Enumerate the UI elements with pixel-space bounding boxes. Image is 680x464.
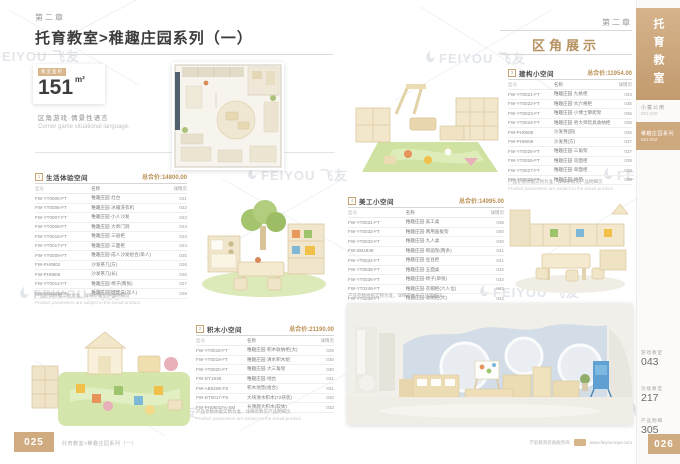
cell-name: 稚趣庄园·九人桌: [406, 238, 478, 244]
table-total: 总合价:14800.00: [142, 172, 187, 181]
cell-name: 稚趣庄园·椅子(两张): [91, 281, 161, 287]
cell-model: FW-YT0012-FT: [35, 281, 91, 286]
table-row: FW-DT0017-FS 大块清水积木(72块装) 032: [196, 394, 334, 404]
table-row: FW-YT0024-FT 稚趣庄园·男大师玩具收纳柜 036: [508, 119, 632, 129]
cell-name: 稚趣庄园·衣帽柜(六人位): [406, 286, 478, 292]
cell-model: FW-DT0017-FS: [196, 395, 247, 400]
footer-website: www.feiyou-toys.com: [590, 440, 632, 445]
table-title: 积木小空间: [207, 324, 242, 334]
product-table-art-space: 4 美工小空间 总合价:14995.00 型号 名称 详情页 FW-YT0031…: [348, 194, 504, 304]
right-page-number: 026: [648, 434, 680, 454]
classroom-photo: [347, 303, 633, 425]
cell-model: FW-YT0035-FT: [348, 267, 406, 272]
total-label: 总合价:: [459, 199, 479, 205]
cell-model: FW-YT0007-FT: [35, 215, 91, 220]
cell-name: 稚趣庄园·大六格柜: [554, 101, 611, 107]
area-number: 151: [38, 76, 73, 99]
intro-text-cn: 区角游戏·情景性语言: [38, 112, 109, 122]
cell-page: 041: [477, 248, 504, 253]
active-series-range: 021-042: [641, 137, 680, 142]
cell-model: FW-PH0808: [35, 272, 91, 277]
cell-model: FW-AB0205-FS: [196, 386, 247, 391]
cell-model: FW-YT0016-FT: [35, 234, 91, 239]
table-header: 1 生活体验空间 总合价:14800.00: [35, 170, 187, 184]
table-row: FW-YT0033-FT 稚趣庄园·九人桌 040: [348, 237, 504, 247]
col-page: 详情页: [611, 82, 632, 88]
table-row: FW-YT0016-FT 稚趣庄园·三层柜 024: [35, 232, 187, 242]
title-underline: [35, 54, 333, 55]
table-row: FW-YT0036-FT 稚趣庄园·椅子(单张) 042: [348, 275, 504, 285]
table-number-badge: 4: [348, 197, 356, 205]
classroom-area-card: 教室面积 151m²: [33, 64, 105, 104]
note-en: Product parameters are subject to the ac…: [508, 185, 632, 192]
col-name: 名称: [247, 338, 310, 344]
page-title: 托育教室>稚趣庄园系列（一）: [35, 27, 253, 48]
cell-name: 稚趣庄园·晾画架(两条): [406, 248, 478, 254]
cell-page: 030: [311, 357, 334, 362]
table-row: FW-YT0006-FT 稚趣庄园·冰箱洗衣机 022: [35, 204, 187, 214]
chapter-label: 第二章: [35, 12, 253, 23]
cell-page: 036: [611, 130, 632, 135]
cell-model: FW-YT0025-FT: [508, 149, 554, 154]
table-header: 4 美工小空间 总合价:14995.00: [348, 194, 504, 208]
total-value: 11954.00: [607, 71, 632, 77]
total-value: 14995.00: [479, 199, 504, 205]
left-page-header: 第二章 托育教室>稚趣庄园系列（一）: [35, 12, 253, 48]
sidebar-link-page: 217: [641, 392, 663, 404]
cell-page: 040: [477, 239, 504, 244]
cell-name: 稚趣庄园·成人沙发组合(单人): [91, 252, 161, 258]
sidebar-link[interactable]: 功能教室 217: [641, 386, 663, 404]
table-title: 美工小空间: [359, 196, 394, 206]
cell-name: 稚趣庄园·积木收纳柜(大): [247, 347, 310, 353]
cell-page: 031: [311, 386, 334, 391]
table-row: FW-YT0034-FT 稚趣庄园·豆豆柜 041: [348, 256, 504, 266]
cell-model: FW-PH0608: [508, 139, 554, 144]
table-row: FW-YT0026-FT 稚趣庄园·双面柜 038: [508, 157, 632, 167]
col-name: 名称: [91, 186, 161, 192]
table-row: FW-PH0508 沙发凳(圆) 036: [508, 128, 632, 138]
construction-space-product-image: [348, 70, 504, 188]
cell-model: FW-YT0020-FT: [196, 367, 247, 372]
cell-model: FW-YT0017-FT: [35, 243, 91, 248]
table-row: FW-YT0032-FT 稚趣庄园·两用画板架 040: [348, 228, 504, 238]
cell-page: 029: [311, 348, 334, 353]
total-label: 总合价:: [142, 175, 162, 181]
cell-page: 026: [161, 272, 187, 277]
table-rows: FW-YT0005-FT 稚趣庄园·灶台 021 FW-YT0006-FT 稚趣…: [35, 194, 187, 299]
footer-logo-icon: [574, 439, 586, 446]
table-row: FW-YT0020-FT 稚趣庄园·大三角架 030: [196, 365, 334, 375]
cell-page: 030: [311, 367, 334, 372]
total-label: 总合价:: [587, 71, 607, 77]
col-page: 详情页: [477, 210, 504, 216]
col-model: 型号: [348, 210, 406, 216]
cell-page: 042: [477, 277, 504, 282]
note-cn: 产品参数依据实物为准，详细参数见产品明细页: [196, 408, 334, 415]
product-table-blocks-space: 2 积木小空间 总合价:21190.00 型号 名称 详情页 FW-YT0018…: [196, 322, 334, 413]
table-total: 总合价:14995.00: [459, 196, 504, 205]
cell-page: 040: [477, 229, 504, 234]
sidebar-tab-nursery-classroom[interactable]: 托育教室: [636, 8, 680, 100]
table-number-badge: 1: [35, 173, 43, 181]
cell-model: FW-YT0019-FT: [196, 357, 247, 362]
cell-page: 038: [611, 158, 632, 163]
feiyou-logo-icon: [424, 50, 436, 65]
table-row: FW-YT0008-FT 稚趣庄园·大师门洞 023: [35, 223, 187, 233]
cell-page: 042: [477, 267, 504, 272]
col-model: 型号: [35, 186, 91, 192]
sidebar-group-common[interactable]: 小童公用 001-020: [641, 104, 665, 116]
table-rows: FW-YT0031-FT 稚趣庄园·美工桌 039 FW-YT0032-FT 稚…: [348, 218, 504, 304]
table-row: FW-YT0005-FT 稚趣庄园·灶台 021: [35, 194, 187, 204]
cell-model: FW-YT0027-FT: [508, 168, 554, 173]
cell-page: 035: [611, 111, 632, 116]
cell-name: 稚趣庄园·三角架: [554, 148, 611, 154]
cell-model: FW-YT0023-FT: [508, 111, 554, 116]
column-headers: 型号 名称 详情页: [196, 336, 334, 346]
right-chapter: 第二章: [500, 12, 632, 30]
cell-page: 026: [161, 262, 187, 267]
floor-plan-image: [172, 62, 284, 170]
cell-model: FW-YT0032-FT: [348, 229, 406, 234]
table-header: 3 建构小空间 总合价:11954.00: [508, 66, 632, 80]
catalog-spread: FEIYOU 飞友 FEIYOU 飞友 FEIYOU 飞友 FEIYOU 飞友 …: [0, 0, 680, 464]
feiyou-logo-icon: [18, 286, 30, 301]
cell-page: 023: [161, 215, 187, 220]
cell-model: FW-DY1838: [196, 376, 247, 381]
total-value: 14800.00: [162, 175, 187, 181]
art-space-product-image: [508, 202, 634, 298]
cell-model: FW-YT0018-FT: [196, 348, 247, 353]
active-series-label: 稚趣庄园系列: [641, 130, 680, 137]
section-rule-top: [500, 30, 632, 31]
cell-page: 031: [311, 376, 334, 381]
note-en: Product parameters are subject to the ac…: [35, 299, 187, 306]
cell-page: 039: [477, 220, 504, 225]
blocks-space-product-image: [30, 330, 198, 430]
cell-model: FW-YT0008-FT: [35, 224, 91, 229]
cell-name: 稚趣庄园·椅子(单张): [406, 276, 478, 282]
column-headers: 型号 名称 详情页: [508, 80, 632, 90]
footer-company-text: 学前教育装备服务商: [529, 440, 570, 446]
cell-name: 沙发茶几(长): [91, 271, 161, 277]
section-rule-bottom: [500, 54, 632, 55]
cell-model: FW-YT0024-FT: [508, 120, 554, 125]
product-table-build-space: 3 建构小空间 总合价:11954.00 型号 名称 详情页 FW-YT0021…: [508, 66, 632, 185]
table-title: 建构小空间: [519, 68, 554, 78]
watermark-text: FEIYOU 飞友: [0, 46, 80, 65]
table-rows: FW-YT0018-FT 稚趣庄园·积木收纳柜(大) 029 FW-YT0019…: [196, 346, 334, 413]
table-row: FW-AB0205-FS 积木地垫(组合) 031: [196, 384, 334, 394]
table-row: FW-YT0031-FT 稚趣庄园·美工桌 039: [348, 218, 504, 228]
cell-page: 037: [611, 149, 632, 154]
table-row: FW-YT0017-FT 稚趣庄园·三面柜 024: [35, 242, 187, 252]
cell-page: 038: [611, 168, 632, 173]
column-headers: 型号 名称 详情页: [35, 184, 187, 194]
product-table-life-space: 1 生活体验空间 总合价:14800.00 型号 名称 详情页 FW-YT000…: [35, 170, 187, 299]
table-note: 产品参数依据实物为准，详细参数见产品明细页 Product parameters…: [35, 292, 187, 306]
cell-name: 稚趣庄园·三层柜: [91, 233, 161, 239]
cell-page: 034: [611, 92, 632, 97]
cell-model: FW-YT0033-FT: [348, 239, 406, 244]
col-model: 型号: [196, 338, 247, 344]
table-note: 产品参数依据实物为准，详细参数见产品明细页 Product parameters…: [508, 178, 632, 192]
cell-page: 027: [161, 281, 187, 286]
cell-model: FW-PH0508: [508, 130, 554, 135]
cell-name: 稚趣庄园·大师门洞: [91, 224, 161, 230]
footer-series-text: 托育教室>稚趣庄园系列（一）: [62, 440, 137, 447]
table-row: FW-YT0035-FT 稚趣庄园·五面桌 042: [348, 266, 504, 276]
col-model: 型号: [508, 82, 554, 88]
table-number-badge: 2: [196, 325, 204, 333]
cell-model: FW-ZM1838: [348, 248, 406, 253]
cell-name: 稚趣庄园·冰箱洗衣机: [91, 205, 161, 211]
table-row: FW-PH0608 沙发凳(方) 037: [508, 138, 632, 148]
table-note: 产品参数依据实物为准，详细参数见产品明细页 Product parameters…: [196, 408, 334, 422]
table-total: 总合价:11954.00: [587, 68, 632, 77]
cell-model: FW-YT0021-FT: [508, 92, 554, 97]
area-unit: m²: [75, 75, 85, 84]
table-note: 产品参数依据实物为准，详细参数见产品明细页: [348, 292, 504, 299]
sidebar-link[interactable]: 游戏教室 043: [641, 350, 663, 368]
cell-name: 稚趣庄园·地台: [247, 376, 310, 382]
cell-page: 025: [161, 253, 187, 258]
table-header: 2 积木小空间 总合价:21190.00: [196, 322, 334, 336]
total-label: 总合价:: [289, 327, 309, 333]
cell-name: 稚趣庄园·单面柜: [554, 167, 611, 173]
table-row: FW-YT0023-FT 稚趣庄园·小博士攀爬架 035: [508, 109, 632, 119]
cell-name: 稚趣庄园·双面柜: [554, 158, 611, 164]
cell-page: 041: [477, 258, 504, 263]
cell-name: 积木地垫(组合): [247, 385, 310, 391]
col-name: 名称: [406, 210, 478, 216]
intro-text-en: Corner game situational language.: [38, 124, 130, 130]
sidebar-active-series[interactable]: 稚趣庄园系列 021-042: [636, 122, 680, 150]
section-title: 区角展示: [500, 35, 632, 54]
cell-model: FW-PH0802: [35, 262, 91, 267]
cell-model: FW-YT0026-FT: [508, 158, 554, 163]
cell-name: 稚趣庄园·清水积木组: [247, 357, 310, 363]
cell-page: 023: [161, 224, 187, 229]
feiyou-watermark: FEIYOU 飞友: [0, 46, 80, 65]
table-row: FW-ZM1838 稚趣庄园·晾画架(两条) 041: [348, 247, 504, 257]
cell-name: 沙发凳(圆): [554, 129, 611, 135]
area-value: 151m²: [38, 75, 85, 100]
cell-name: 稚趣庄园·豆豆柜: [406, 257, 478, 263]
table-row: FW-PH0808 沙发茶几(长) 026: [35, 270, 187, 280]
cell-name: 沙发茶几(方): [91, 262, 161, 268]
table-rows: FW-YT0021-FT 稚趣庄园·九格柜 034 FW-YT0022-FT 稚…: [508, 90, 632, 185]
cell-name: 稚趣庄园·两用画板架: [406, 229, 478, 235]
left-page-number: 025: [14, 432, 54, 452]
table-row: FW-DY1838 稚趣庄园·地台 031: [196, 375, 334, 385]
cell-model: FW-YT0031-FT: [348, 220, 406, 225]
table-row: FW-PH0802 沙发茶几(方) 026: [35, 261, 187, 271]
cell-page: 037: [611, 139, 632, 144]
chapter-label: 第二章: [602, 18, 632, 27]
cell-page: 036: [611, 120, 632, 125]
cell-name: 稚趣庄园·小人沙发: [91, 214, 161, 220]
table-number-badge: 3: [508, 69, 516, 77]
cell-page: 022: [161, 205, 187, 210]
cell-name: 稚趣庄园·灶台: [91, 195, 161, 201]
cell-model: FW-YT0034-FT: [348, 258, 406, 263]
cell-model: FW-YT0005-FT: [35, 196, 91, 201]
cell-model: FW-YT0022-FT: [508, 101, 554, 106]
table-row: FW-YT0007-FT 稚趣庄园·小人沙发 023: [35, 213, 187, 223]
sidebar-tab-label: 托育教室: [650, 18, 666, 90]
col-name: 名称: [554, 82, 611, 88]
cell-page: 024: [161, 243, 187, 248]
table-row: FW-YT0027-FT 稚趣庄园·单面柜 038: [508, 166, 632, 176]
cell-page: 032: [311, 395, 334, 400]
cell-name: 稚趣庄园·小博士攀爬架: [554, 110, 611, 116]
cell-model: FW-YT0009-FT: [35, 253, 91, 258]
note-cn: 产品参数依据实物为准，详细参数见产品明细页: [348, 292, 504, 299]
col-page: 详情页: [161, 186, 187, 192]
table-row: FW-YT0012-FT 稚趣庄园·椅子(两张) 027: [35, 280, 187, 290]
cell-model: FW-YT0036-FT: [348, 277, 406, 282]
footer-right: 学前教育装备服务商 www.feiyou-toys.com: [440, 439, 632, 446]
cell-model: FW-YT0248-FT: [348, 286, 406, 291]
sidebar-link-page: 043: [641, 356, 663, 368]
cell-name: 稚趣庄园·大三角架: [247, 366, 310, 372]
life-space-product-image: [192, 194, 337, 302]
cell-page: 042: [477, 286, 504, 291]
table-total: 总合价:21190.00: [289, 324, 334, 333]
cell-name: 大块清水积木(72块装): [247, 395, 310, 401]
column-headers: 型号 名称 详情页: [348, 208, 504, 218]
table-title: 生活体验空间: [46, 172, 88, 182]
cell-page: 024: [161, 234, 187, 239]
table-row: FW-YT0018-FT 稚趣庄园·积木收纳柜(大) 029: [196, 346, 334, 356]
table-row: FW-YT0019-FT 稚趣庄园·清水积木组 030: [196, 356, 334, 366]
group-range: 001-020: [641, 111, 665, 116]
cell-name: 稚趣庄园·九格柜: [554, 91, 611, 97]
total-value: 21190.00: [309, 327, 334, 333]
table-row: FW-YT0009-FT 稚趣庄园·成人沙发组合(单人) 025: [35, 251, 187, 261]
table-row: FW-YT0021-FT 稚趣庄园·九格柜 034: [508, 90, 632, 100]
cell-name: 稚趣庄园·三面柜: [91, 243, 161, 249]
cell-name: 稚趣庄园·美工桌: [406, 219, 478, 225]
group-label: 小童公用: [641, 104, 665, 111]
cell-page: 035: [611, 101, 632, 106]
col-page: 详情页: [311, 338, 334, 344]
note-cn: 产品参数依据实物为准，详细参数见产品明细页: [35, 292, 187, 299]
table-row: FW-YT0022-FT 稚趣庄园·大六格柜 035: [508, 100, 632, 110]
note-cn: 产品参数依据实物为准，详细参数见产品明细页: [508, 178, 632, 185]
table-row: FW-YT0025-FT 稚趣庄园·三角架 037: [508, 147, 632, 157]
cell-page: 021: [161, 196, 187, 201]
cell-name: 沙发凳(方): [554, 139, 611, 145]
note-en: Product parameters are subject to the ac…: [196, 415, 334, 422]
cell-model: FW-YT0006-FT: [35, 205, 91, 210]
cell-name: 稚趣庄园·五面桌: [406, 267, 478, 273]
cell-name: 稚趣庄园·男大师玩具收纳柜: [554, 120, 611, 126]
